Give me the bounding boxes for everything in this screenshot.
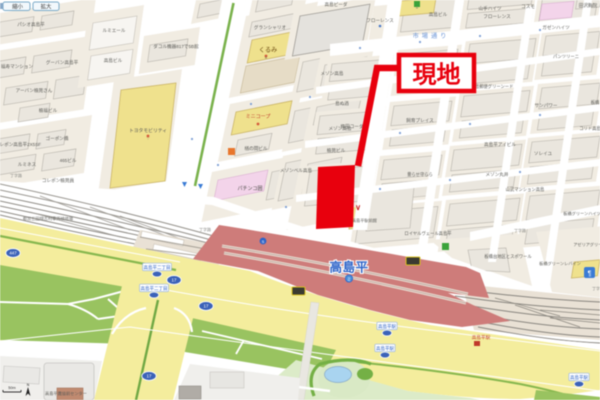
svg-text:ミ: ミ: [347, 277, 352, 282]
svg-text:50m: 50m: [8, 386, 15, 390]
svg-text:パチンコ囲: パチンコ囲: [237, 186, 262, 192]
svg-text:パシオ高島平: パシオ高島平: [17, 21, 45, 28]
svg-text:山手ハイツ: 山手ハイツ: [479, 5, 502, 12]
svg-text:メゾンベル高島: メゾンベル高島: [280, 167, 313, 174]
svg-text:ルミエール: ルミエール: [103, 28, 126, 33]
svg-text:島ぬ酒: 島ぬ酒: [335, 100, 349, 107]
svg-text:板橋: 板橋: [591, 99, 600, 106]
svg-text:ロイヤルヴェール高島平: ロイヤルヴェール高島平: [404, 230, 452, 237]
svg-text:山武マンション高島: 山武マンション高島: [506, 186, 545, 193]
svg-text:高島ビル: 高島ビル: [429, 11, 448, 18]
svg-text:丁字路: 丁字路: [199, 226, 211, 232]
svg-text:パンツリーニ: パンツリーニ: [553, 54, 579, 59]
svg-text:板橋台地区とスポワール: 板橋台地区とスポワール: [484, 253, 532, 260]
svg-text:高島平農協前センター: 高島平農協前センター: [45, 390, 87, 397]
svg-text:梅田コーダ: 梅田コーダ: [341, 123, 364, 130]
svg-text:高島平二丁目: 高島平二丁目: [141, 285, 168, 292]
svg-text:高島ビル: 高島ビル: [104, 57, 123, 64]
svg-text:田沢胸院: 田沢胸院: [579, 2, 598, 9]
svg-text:拡大: 拡大: [41, 2, 52, 10]
svg-text:高島郵便グリーンード: 高島郵便グリーンード: [471, 83, 514, 90]
svg-text:高島ビーダ: 高島ビーダ: [325, 1, 348, 8]
svg-text:447: 447: [9, 251, 17, 256]
svg-text:楢の間ビル: 楢の間ビル: [245, 145, 268, 152]
svg-text:現地: 現地: [413, 62, 461, 89]
svg-text:高島平二丁目: 高島平二丁目: [144, 264, 171, 271]
svg-text:丁字路: 丁字路: [10, 172, 22, 178]
svg-text:465ビル: 465ビル: [60, 157, 77, 163]
svg-text:ダコル機器817で5B館: ダコル機器817で5B館: [153, 43, 199, 50]
svg-text:福寿マンション: 福寿マンション: [1, 63, 34, 70]
svg-text:コスモ: コスモ: [521, 4, 535, 9]
svg-text:板橋グリーンレバイン: 板橋グリーンレバイン: [539, 260, 581, 267]
svg-text:∨: ∨: [355, 203, 361, 212]
svg-text:ミニコープ: ミニコープ: [246, 114, 271, 120]
svg-text:ガゼンハイツ: ガゼンハイツ: [542, 24, 570, 31]
svg-text:コレポン高島平2X5SF: コレポン高島平2X5SF: [0, 141, 41, 148]
svg-text:ソレイユ: ソレイユ: [534, 151, 553, 156]
svg-text:丁字路: 丁字路: [514, 227, 526, 233]
svg-text:メゾン高島: メゾン高島: [321, 70, 344, 77]
svg-text:ゴーポン橋: ゴーポン橋: [46, 135, 69, 142]
svg-text:コレポン植苑員: コレポン植苑員: [42, 177, 75, 184]
svg-text:高島平駅: 高島平駅: [378, 323, 396, 330]
svg-text:トヨタモビリティ: トヨタモビリティ: [129, 127, 167, 134]
svg-text:植福ビル: 植福ビル: [39, 107, 58, 114]
svg-text:高島平アイビル: 高島平アイビル: [484, 141, 516, 148]
svg-text:高島平駅: 高島平駅: [472, 334, 491, 341]
svg-text:17: 17: [204, 304, 209, 309]
svg-text:フローレンス: フローレンス: [366, 18, 394, 23]
svg-text:17: 17: [147, 374, 152, 379]
svg-text:都営三田線志村車両検修場: 都営三田線志村車両検修場: [23, 215, 74, 222]
svg-text:S: S: [262, 239, 265, 244]
svg-text:17: 17: [172, 278, 177, 283]
svg-text:高島平駅: 高島平駅: [570, 374, 588, 381]
svg-text:グランシャリオ: グランシャリオ: [254, 24, 287, 31]
svg-text:メゾン丸井: メゾン丸井: [486, 171, 509, 178]
svg-text:フローレンス: フローレンス: [483, 14, 511, 19]
svg-text:コリド高島: コリド高島: [579, 125, 600, 132]
svg-text:∵: ∵: [147, 136, 150, 141]
svg-text:グーバン高島平: グーバン高島平: [46, 59, 79, 66]
svg-text:高島平: 高島平: [329, 260, 368, 275]
svg-text:くるみ: くるみ: [259, 47, 277, 54]
svg-text:丁字路: 丁字路: [592, 285, 600, 291]
svg-text:アーバン植苑さん: アーバン植苑さん: [16, 87, 53, 94]
svg-text:豊らせ守らら: 豊らせ守らら: [407, 171, 433, 178]
svg-text:¶: ¶: [588, 271, 592, 278]
svg-text:高島平駅: 高島平駅: [376, 345, 394, 352]
svg-text:縮小: 縮小: [12, 2, 23, 10]
svg-text:市場通り: 市場通り: [413, 32, 450, 40]
svg-text:板橋グリーンハイツ: 板橋グリーンハイツ: [563, 210, 600, 217]
svg-text:植苑ビル: 植苑ビル: [327, 147, 346, 154]
svg-text:飼育プレイス: 飼育プレイス: [406, 117, 434, 124]
svg-text:アゼリアグリーン偶像: アゼリアグリーン偶像: [573, 241, 600, 248]
